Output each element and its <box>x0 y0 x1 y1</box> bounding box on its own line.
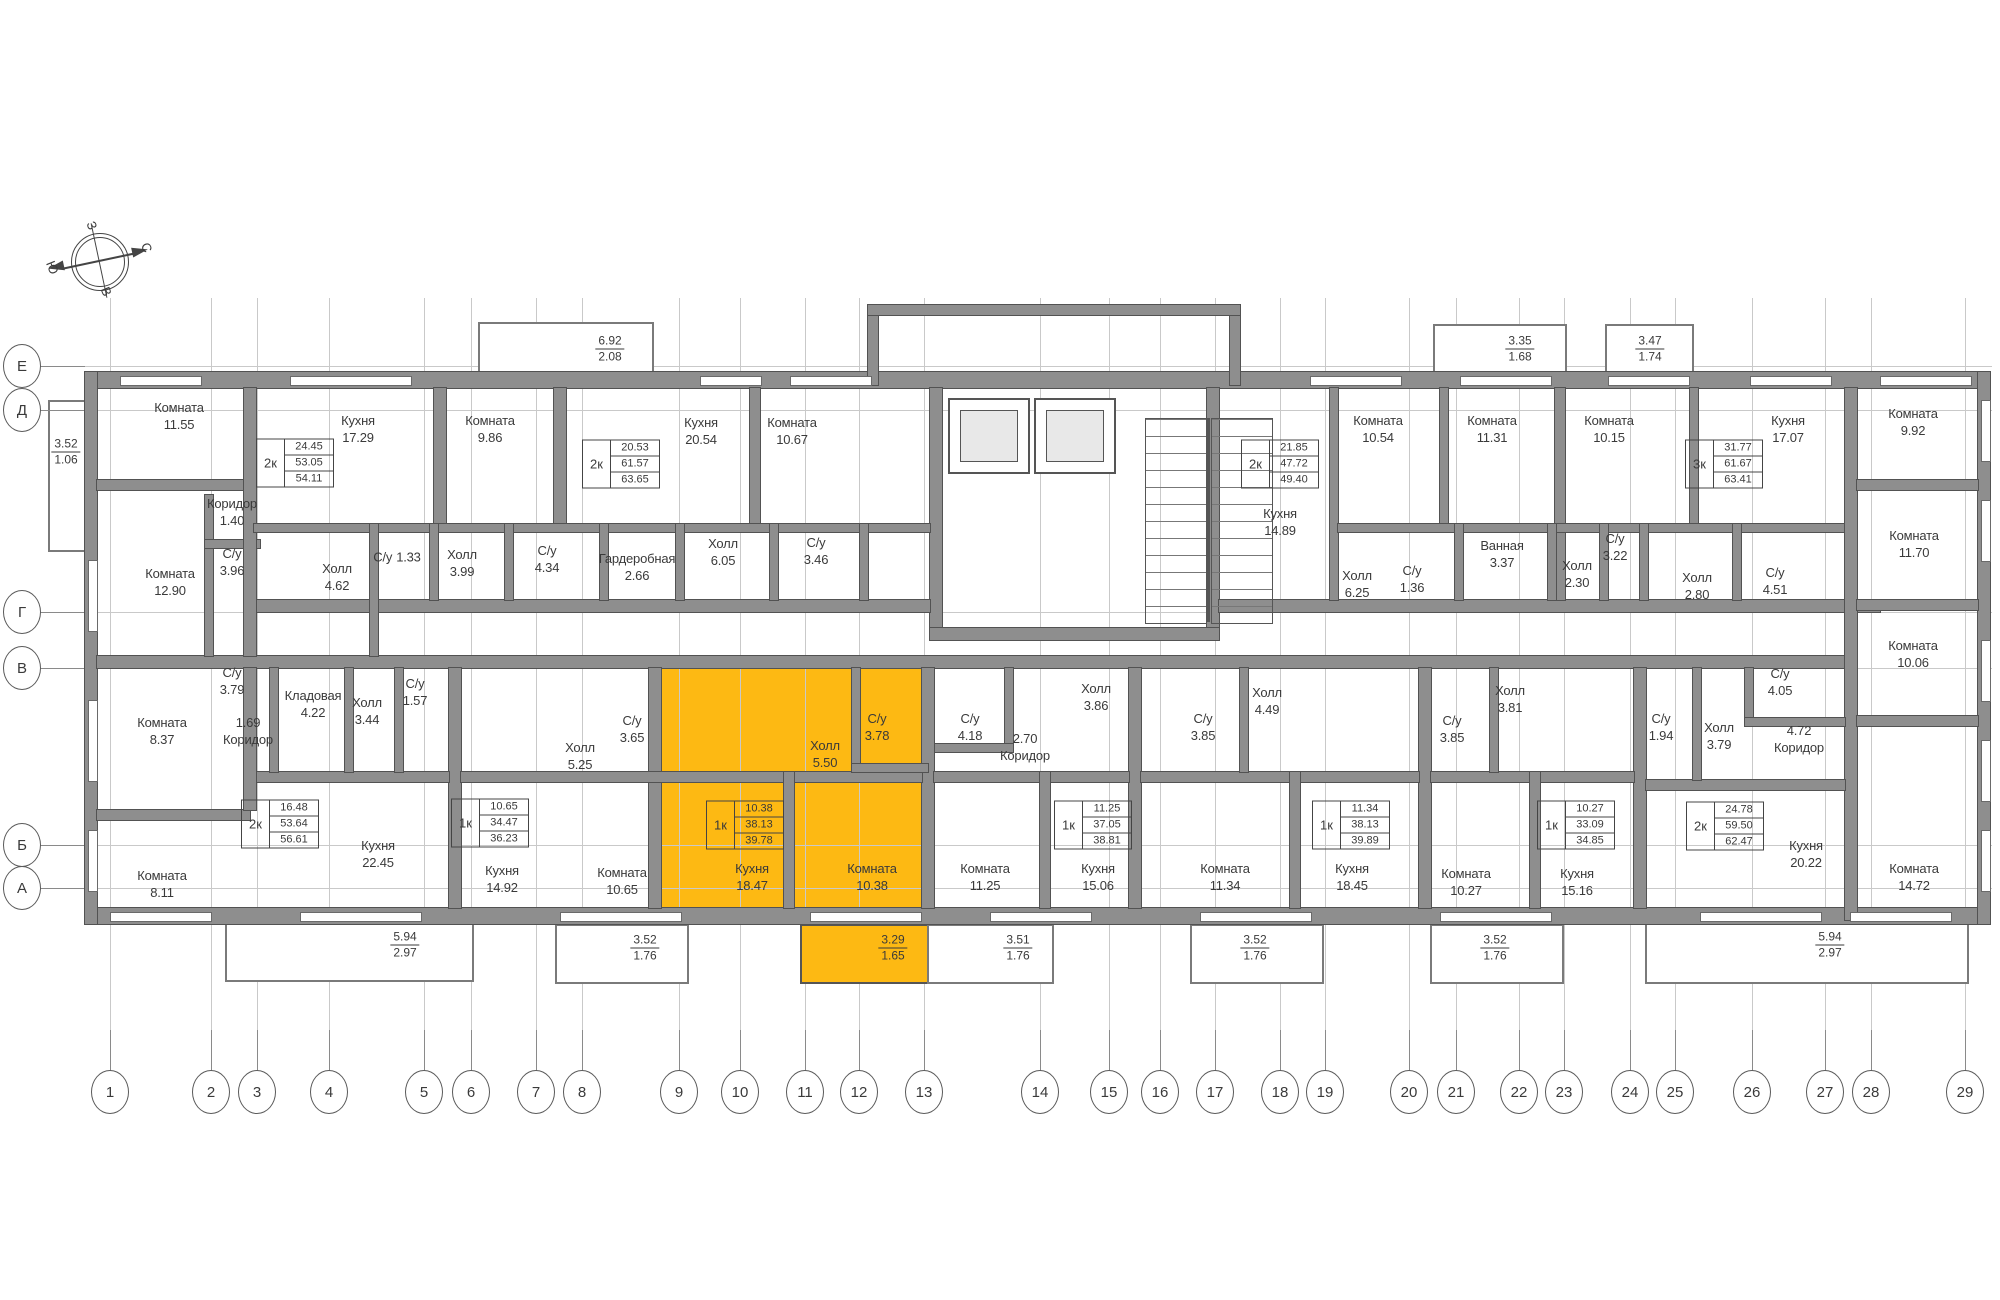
column-axis-bubble-13: 13 <box>905 1070 943 1114</box>
room-area: 15.06 <box>1082 878 1114 895</box>
room-label: С/у 3.85 <box>1191 711 1216 745</box>
room-label: Кухня 17.07 <box>1771 413 1805 447</box>
balcony-area-label: 3.52 1.76 <box>630 933 659 964</box>
total-area-with-balcony: 56.61 <box>270 833 318 848</box>
axis-leader-line <box>110 1030 111 1071</box>
apartment-type: 2к <box>1687 803 1715 850</box>
room-name: С/у <box>1606 531 1625 548</box>
column-axis-bubble-12: 12 <box>840 1070 878 1114</box>
apartment-type: 1к <box>1538 802 1566 849</box>
balcony-area-label: 3.52 1.06 <box>51 437 80 468</box>
room-name: С/у <box>1652 711 1671 728</box>
room-area: 15.16 <box>1561 883 1593 900</box>
wall <box>505 524 513 600</box>
wall <box>784 772 794 908</box>
axis-leader-line <box>859 1030 860 1071</box>
axis-leader-line <box>1630 1030 1631 1071</box>
room-label: Комната 14.72 <box>1889 861 1939 895</box>
total-area-with-balcony: 49.40 <box>1270 473 1318 488</box>
wall <box>852 668 860 772</box>
room-name: Холл <box>1252 685 1282 702</box>
room-name: С/у <box>868 711 887 728</box>
balcony-reduced-area-value: 2.08 <box>595 350 624 365</box>
wall <box>449 668 461 908</box>
window-icon <box>1981 500 1991 562</box>
apartment-type: 3к <box>1686 441 1714 488</box>
living-area: 10.27 <box>1566 802 1614 818</box>
wall <box>1857 716 1978 726</box>
balcony-reduced-area-value: 2.97 <box>1815 946 1844 961</box>
wall <box>1548 524 1556 600</box>
room-label: Коридор 2.70 <box>1000 731 1050 765</box>
row-axis-bubble-Е: Е <box>3 344 41 388</box>
balcony-area-label: 3.35 1.68 <box>1505 334 1534 365</box>
axis-leader-line <box>1965 1030 1966 1071</box>
room-area: 2.80 <box>1685 587 1710 604</box>
room-label: Комната 10.27 <box>1441 866 1491 900</box>
room-label: Холл 3.81 <box>1495 683 1525 717</box>
column-axis-bubble-26: 26 <box>1733 1070 1771 1114</box>
grid-line-row-Г <box>40 612 1992 613</box>
room-label: Комната 9.92 <box>1888 406 1938 440</box>
column-axis-bubble-20: 20 <box>1390 1070 1428 1114</box>
compass-north-label: С <box>138 240 155 254</box>
apartment-areas: 24.78 59.50 62.47 <box>1715 803 1763 850</box>
room-area: 4.51 <box>1763 582 1788 599</box>
balcony-reduced-area-value: 1.74 <box>1635 350 1664 365</box>
wall <box>1646 780 1845 790</box>
balcony-area-value: 3.47 <box>1635 334 1664 350</box>
balcony-reduced-area-value: 1.76 <box>1003 949 1032 964</box>
room-label: Холл 6.25 <box>1342 568 1372 602</box>
room-label: Гардеробная 2.66 <box>599 551 675 585</box>
room-label: Комната 11.70 <box>1889 528 1939 562</box>
room-label: С/у 1.57 <box>403 676 428 710</box>
wall <box>1240 668 1248 772</box>
room-area: 1.40 <box>220 513 245 530</box>
room-name: С/у <box>1403 563 1422 580</box>
room-name: Кладовая <box>285 688 342 705</box>
wall <box>1857 600 1978 610</box>
row-axis-bubble-А: А <box>3 866 41 910</box>
total-area-with-balcony: 34.85 <box>1566 834 1614 849</box>
room-area: 9.86 <box>478 430 503 447</box>
window-icon <box>290 376 412 386</box>
apartment-info-table: 1к 10.38 38.13 39.78 <box>706 801 784 850</box>
window-icon <box>1750 376 1832 386</box>
axis-leader-line <box>1675 1030 1676 1071</box>
row-axis-bubble-Г: Г <box>3 590 41 634</box>
room-label: Комната 10.15 <box>1584 413 1634 447</box>
window-icon <box>1981 830 1991 892</box>
room-name: Холл <box>352 695 382 712</box>
room-name: Кухня <box>1771 413 1805 430</box>
elevator-shaft-1 <box>948 398 1030 474</box>
room-name: С/у <box>1194 711 1213 728</box>
room-label: Комната 11.25 <box>960 861 1010 895</box>
room-label: Комната 11.31 <box>1467 413 1517 447</box>
row-axis-bubble-Д: Д <box>3 388 41 432</box>
total-area: 61.67 <box>1714 457 1762 473</box>
wall <box>97 656 1857 668</box>
room-name: Коридор <box>223 732 273 749</box>
axis-leader-line <box>40 410 85 411</box>
living-area: 11.34 <box>1341 802 1389 818</box>
axis-leader-line <box>257 1030 258 1071</box>
wall <box>434 388 446 524</box>
room-area: 2.30 <box>1565 575 1590 592</box>
column-axis-bubble-9: 9 <box>660 1070 698 1114</box>
total-area: 59.50 <box>1715 819 1763 835</box>
grid-line-column-1 <box>110 298 111 1056</box>
room-area: 14.89 <box>1264 523 1296 540</box>
living-area: 24.45 <box>285 440 333 456</box>
column-axis-bubble-4: 4 <box>310 1070 348 1114</box>
balcony-area-label: 5.94 2.97 <box>390 930 419 961</box>
axis-leader-line <box>1109 1030 1110 1071</box>
room-label: С/у 4.34 <box>535 543 560 577</box>
balcony-area-value: 3.52 <box>1480 933 1509 949</box>
room-label: Холл 3.79 <box>1704 720 1734 754</box>
balcony-reduced-area-value: 1.65 <box>878 949 907 964</box>
wall <box>930 388 942 640</box>
room-area: 11.70 <box>1899 545 1930 562</box>
axis-leader-line <box>740 1030 741 1071</box>
balcony-area-value: 3.52 <box>51 437 80 453</box>
axis-leader-line <box>40 668 85 669</box>
axis-leader-line <box>329 1030 330 1071</box>
room-area: 4.05 <box>1768 683 1793 700</box>
window-icon <box>88 560 98 632</box>
apartment-areas: 24.45 53.05 54.11 <box>285 440 333 487</box>
room-area: 2.70 <box>1013 731 1038 748</box>
column-axis-bubble-1: 1 <box>91 1070 129 1114</box>
balcony-reduced-area-value: 2.97 <box>390 946 419 961</box>
room-label: Коридор 4.72 <box>1774 723 1824 757</box>
window-icon <box>1460 376 1552 386</box>
axis-leader-line <box>1280 1030 1281 1071</box>
room-area: 3.79 <box>220 682 245 699</box>
room-label: С/у 3.85 <box>1440 713 1465 747</box>
floor-plan: З С Ю В Комната 11.55 Кухня 17.29 Комнат… <box>0 0 2000 1300</box>
wall <box>1440 388 1448 524</box>
room-area: 3.22 <box>1603 548 1628 565</box>
column-axis-bubble-27: 27 <box>1806 1070 1844 1114</box>
living-area: 16.48 <box>270 801 318 817</box>
room-area: 8.11 <box>150 885 174 902</box>
stair-divider <box>1206 418 1210 622</box>
wall <box>1733 524 1741 600</box>
total-area: 38.13 <box>1341 818 1389 834</box>
window-icon <box>1981 400 1991 462</box>
room-label: Холл 3.86 <box>1081 681 1111 715</box>
grid-line-column-19 <box>1325 298 1326 1056</box>
room-area: 18.45 <box>1336 878 1368 895</box>
window-icon <box>1850 912 1952 922</box>
axis-leader-line <box>1871 1030 1872 1071</box>
window-icon <box>1200 912 1312 922</box>
apartment-areas: 16.48 53.64 56.61 <box>270 801 318 848</box>
apartment-areas: 20.53 61.57 63.65 <box>611 441 659 488</box>
balcony-area-label: 6.92 2.08 <box>595 334 624 365</box>
wall <box>554 388 566 524</box>
balcony-area-value: 3.52 <box>630 933 659 949</box>
total-area: 37.05 <box>1083 818 1131 834</box>
room-label: Холл 4.49 <box>1252 685 1282 719</box>
room-label: С/у 4.05 <box>1768 666 1793 700</box>
balcony-area-value: 6.92 <box>595 334 624 350</box>
axis-leader-line <box>1325 1030 1326 1071</box>
window-icon <box>120 376 202 386</box>
room-label: С/у 3.65 <box>620 713 645 747</box>
balcony <box>800 924 929 984</box>
column-axis-bubble-14: 14 <box>1021 1070 1059 1114</box>
room-name: Комната <box>1467 413 1517 430</box>
room-name: Холл <box>1495 683 1525 700</box>
room-area: 1.57 <box>403 693 428 710</box>
room-label: Холл 2.30 <box>1562 558 1592 592</box>
balcony-area-value: 5.94 <box>390 930 419 946</box>
room-name: Комната <box>1888 638 1938 655</box>
room-name: Комната <box>1200 861 1250 878</box>
room-area: 14.72 <box>1898 878 1930 895</box>
wall <box>430 524 438 600</box>
balcony <box>478 322 654 376</box>
room-area: 3.86 <box>1084 698 1109 715</box>
room-label: Комната 10.06 <box>1888 638 1938 672</box>
room-name: Комната <box>847 861 897 878</box>
window-icon <box>88 830 98 892</box>
room-area: 10.54 <box>1362 430 1394 447</box>
room-label: Ванная 3.37 <box>1480 538 1523 572</box>
grid-line-column-24 <box>1630 298 1631 1056</box>
total-area: 34.47 <box>480 816 528 832</box>
room-name: Комната <box>767 415 817 432</box>
room-name: Комната <box>1584 413 1634 430</box>
window-icon <box>1880 376 1972 386</box>
total-area: 33.09 <box>1566 818 1614 834</box>
wall <box>1338 524 1845 532</box>
balcony-area-label: 3.47 1.74 <box>1635 334 1664 365</box>
room-name: Комната <box>1353 413 1403 430</box>
room-label: Кухня 22.45 <box>361 838 395 872</box>
room-name: Коридор <box>1000 748 1050 765</box>
room-area: 8.37 <box>150 732 175 749</box>
room-label: Кухня 17.29 <box>341 413 375 447</box>
room-name: Ванная <box>1480 538 1523 555</box>
room-area: 10.38 <box>856 878 888 895</box>
axis-leader-line <box>40 366 85 367</box>
grid-line-row-А <box>40 888 1992 889</box>
room-label: Кухня 14.89 <box>1263 506 1297 540</box>
room-area: 17.29 <box>342 430 374 447</box>
apartment-areas: 11.34 38.13 39.89 <box>1341 802 1389 849</box>
window-icon <box>1700 912 1822 922</box>
apartment-type: 1к <box>1055 802 1083 849</box>
living-area: 21.85 <box>1270 441 1318 457</box>
room-area: 3.46 <box>804 552 829 569</box>
compass-rose: З С Ю В <box>40 200 170 330</box>
room-name: Комната <box>145 566 195 583</box>
column-axis-bubble-29: 29 <box>1946 1070 1984 1114</box>
window-icon <box>1310 376 1402 386</box>
wall <box>649 668 661 908</box>
column-axis-bubble-21: 21 <box>1437 1070 1475 1114</box>
column-axis-bubble-6: 6 <box>452 1070 490 1114</box>
column-axis-bubble-2: 2 <box>192 1070 230 1114</box>
room-area: 3.79 <box>1707 737 1732 754</box>
room-area: 11.31 <box>1477 430 1508 447</box>
room-label: С/у 3.79 <box>220 665 245 699</box>
wall <box>1419 668 1431 908</box>
room-area: 10.06 <box>1897 655 1929 672</box>
wall <box>250 600 930 612</box>
room-area: 6.05 <box>711 553 736 570</box>
column-axis-bubble-10: 10 <box>721 1070 759 1114</box>
wall <box>1455 524 1463 600</box>
apartment-info-table: 2к 24.45 53.05 54.11 <box>256 439 334 488</box>
apartment-areas: 10.27 33.09 34.85 <box>1566 802 1614 849</box>
total-area: 53.64 <box>270 817 318 833</box>
column-axis-bubble-22: 22 <box>1500 1070 1538 1114</box>
wall <box>1129 668 1141 908</box>
room-area: 12.90 <box>154 583 186 600</box>
room-label: Комната 10.38 <box>847 861 897 895</box>
axis-leader-line <box>1215 1030 1216 1071</box>
room-name: С/у <box>1771 666 1790 683</box>
column-axis-bubble-3: 3 <box>238 1070 276 1114</box>
axis-leader-line <box>1564 1030 1565 1071</box>
balcony-reduced-area-value: 1.76 <box>630 949 659 964</box>
balcony-area-value: 3.52 <box>1240 933 1269 949</box>
column-axis-bubble-24: 24 <box>1611 1070 1649 1114</box>
balcony-reduced-area-value: 1.68 <box>1505 350 1534 365</box>
room-name: Комната <box>1889 528 1939 545</box>
room-area: 22.45 <box>362 855 394 872</box>
room-name: Холл <box>810 738 840 755</box>
room-label: С/у 3.96 <box>220 546 245 580</box>
room-name: Комната <box>137 715 187 732</box>
room-area: 5.25 <box>568 757 593 774</box>
axis-leader-line <box>1825 1030 1826 1071</box>
room-area: 3.85 <box>1191 728 1216 745</box>
balcony-reduced-area-value: 1.76 <box>1240 949 1269 964</box>
living-area: 11.25 <box>1083 802 1131 818</box>
stair-flight-left <box>1145 418 1207 624</box>
room-area: 3.96 <box>220 563 245 580</box>
axis-leader-line <box>924 1030 925 1071</box>
column-axis-bubble-8: 8 <box>563 1070 601 1114</box>
room-name: Кухня <box>485 863 519 880</box>
elevator-car-icon <box>960 410 1018 462</box>
apartment-areas: 21.85 47.72 49.40 <box>1270 441 1318 488</box>
axis-leader-line <box>536 1030 537 1071</box>
total-area-with-balcony: 63.41 <box>1714 473 1762 488</box>
balcony-area-label: 3.29 1.65 <box>878 933 907 964</box>
apartment-info-table: 2к 24.78 59.50 62.47 <box>1686 802 1764 851</box>
room-area: 18.47 <box>736 878 768 895</box>
room-label: Комната 10.54 <box>1353 413 1403 447</box>
apartment-info-table: 1к 11.34 38.13 39.89 <box>1312 801 1390 850</box>
room-area: 10.15 <box>1593 430 1625 447</box>
room-area: 11.25 <box>970 878 1001 895</box>
room-area: 1.69 <box>236 715 261 732</box>
room-name: Холл <box>1682 570 1712 587</box>
axis-leader-line <box>424 1030 425 1071</box>
balcony-area-label: 3.51 1.76 <box>1003 933 1032 964</box>
grid-line-column-20 <box>1409 298 1410 1056</box>
room-name: Кухня <box>684 415 718 432</box>
balcony <box>927 924 1054 984</box>
total-area-with-balcony: 54.11 <box>285 472 333 487</box>
room-label: Кухня 15.06 <box>1081 861 1115 895</box>
wall <box>922 668 934 908</box>
room-name: Холл <box>1342 568 1372 585</box>
room-area: 11.55 <box>164 417 195 434</box>
room-name: С/у <box>223 665 242 682</box>
apartment-type: 2к <box>1242 441 1270 488</box>
room-label: Кухня 20.22 <box>1789 838 1823 872</box>
window-icon <box>1981 640 1991 702</box>
grid-line-column-16 <box>1160 298 1161 1056</box>
room-name: Комната <box>1889 861 1939 878</box>
axis-leader-line <box>582 1030 583 1071</box>
wall <box>868 305 1240 315</box>
room-name: Холл <box>708 536 738 553</box>
room-label: Холл 5.50 <box>810 738 840 772</box>
room-name: Коридор <box>207 496 257 513</box>
axis-leader-line <box>1409 1030 1410 1071</box>
wall <box>930 628 1219 640</box>
room-name: Холл <box>565 740 595 757</box>
window-icon <box>1981 740 1991 802</box>
elevator-shaft-2 <box>1034 398 1116 474</box>
room-area: 10.65 <box>606 882 638 899</box>
window-icon <box>110 912 212 922</box>
wall <box>934 772 1129 782</box>
wall <box>1634 668 1646 908</box>
room-label: С/у 3.46 <box>804 535 829 569</box>
apartment-type: 1к <box>452 800 480 847</box>
room-area: 17.07 <box>1772 430 1804 447</box>
room-name: С/у <box>1443 713 1462 730</box>
room-area: 3.37 <box>1490 555 1515 572</box>
room-name: Кухня <box>1335 861 1369 878</box>
column-axis-bubble-7: 7 <box>517 1070 555 1114</box>
room-label: С/у 1.33 <box>373 550 420 567</box>
window-icon <box>810 912 922 922</box>
window-icon <box>700 376 762 386</box>
total-area-with-balcony: 38.81 <box>1083 834 1131 849</box>
column-axis-bubble-16: 16 <box>1141 1070 1179 1114</box>
room-name: С/у <box>373 550 392 567</box>
room-label: Холл 4.62 <box>322 561 352 595</box>
apartment-type: 2к <box>257 440 285 487</box>
living-area: 10.38 <box>735 802 783 818</box>
room-name: Кухня <box>1789 838 1823 855</box>
room-name: Комната <box>597 865 647 882</box>
total-area-with-balcony: 63.65 <box>611 473 659 488</box>
wall <box>1693 668 1701 780</box>
total-area-with-balcony: 39.89 <box>1341 834 1389 849</box>
wall <box>1330 388 1338 600</box>
column-axis-bubble-25: 25 <box>1656 1070 1694 1114</box>
room-label: С/у 1.36 <box>1400 563 1425 597</box>
room-area: 3.78 <box>865 728 890 745</box>
wall <box>1290 772 1300 908</box>
room-label: Холл 3.99 <box>447 547 477 581</box>
room-label: Кухня 18.45 <box>1335 861 1369 895</box>
